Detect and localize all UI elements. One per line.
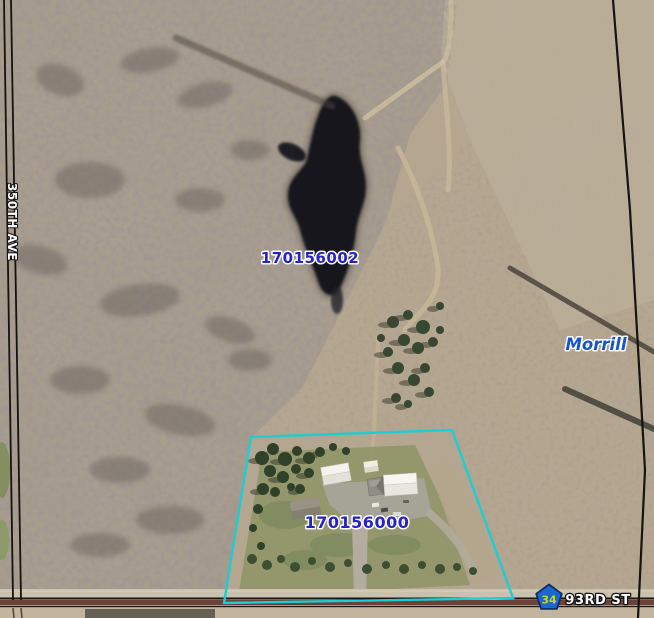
parcel-label-south: 170156000: [305, 513, 410, 532]
highway-number: 34: [541, 594, 557, 607]
parcel-label-north: 170156002: [261, 249, 359, 267]
road-label-93rd-st: 93RD ST: [565, 593, 630, 608]
place-label-morrill: Morrill: [566, 335, 627, 354]
aerial-imagery: 170156002 170156000 Morrill 350TH AVE 93…: [0, 0, 654, 618]
road-label-350th-ave: 350TH AVE: [5, 183, 19, 261]
shed-white: [363, 460, 378, 473]
driveway-south: [352, 522, 368, 599]
aerial-map-view[interactable]: 170156002 170156000 Morrill 350TH AVE 93…: [0, 0, 654, 618]
